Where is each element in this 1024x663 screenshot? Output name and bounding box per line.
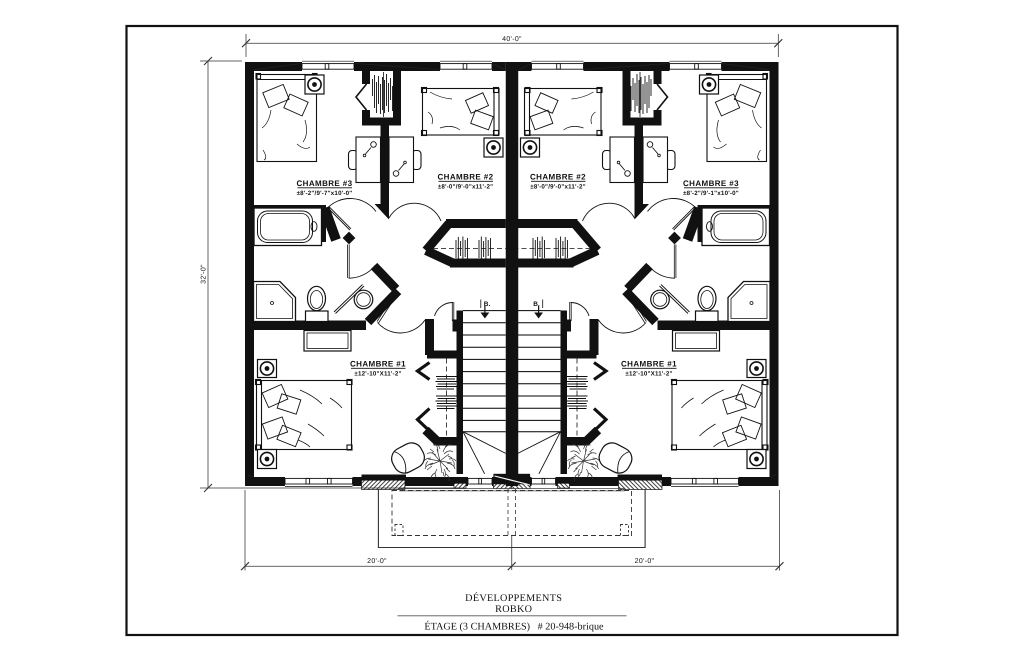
svg-text:CHAMBRE #1: CHAMBRE #1 [621, 360, 677, 369]
svg-text:±12'-10"X11'-2": ±12'-10"X11'-2" [354, 371, 401, 378]
svg-text:±8'-0"/9'-0"x11'-2": ±8'-0"/9'-0"x11'-2" [438, 184, 494, 191]
svg-text:CHAMBRE #2: CHAMBRE #2 [437, 173, 493, 182]
svg-text:±8'-2"/9'-1"x10'-0": ±8'-2"/9'-1"x10'-0" [683, 190, 739, 197]
svg-text:B.: B. [484, 301, 491, 308]
svg-text:CHAMBRE #2: CHAMBRE #2 [530, 173, 586, 182]
svg-text:B.: B. [533, 301, 540, 308]
svg-text:±12'-10"X11'-2": ±12'-10"X11'-2" [625, 371, 672, 378]
svg-text:ROBKO: ROBKO [495, 604, 532, 615]
svg-text:ÉTAGE (3 CHAMBRES) # 20-948-: ÉTAGE (3 CHAMBRES) # 20-948-brique [424, 621, 604, 633]
svg-text:CHAMBRE #1: CHAMBRE #1 [350, 360, 406, 369]
svg-text:40'-0": 40'-0" [502, 36, 522, 43]
svg-text:32'-0": 32'-0" [201, 264, 208, 284]
svg-text:±8'-2"/9'-7"x10'-0": ±8'-2"/9'-7"x10'-0" [297, 190, 353, 197]
svg-text:CHAMBRE #3: CHAMBRE #3 [296, 179, 352, 188]
svg-text:20'-0": 20'-0" [635, 558, 655, 565]
svg-text:±8'-0"/9'-0"x11'-2": ±8'-0"/9'-0"x11'-2" [530, 184, 586, 191]
svg-text:CHAMBRE #3: CHAMBRE #3 [683, 179, 739, 188]
svg-text:20'-0": 20'-0" [367, 558, 387, 565]
svg-text:DÉVELOPPEMENTS: DÉVELOPPEMENTS [465, 592, 562, 604]
